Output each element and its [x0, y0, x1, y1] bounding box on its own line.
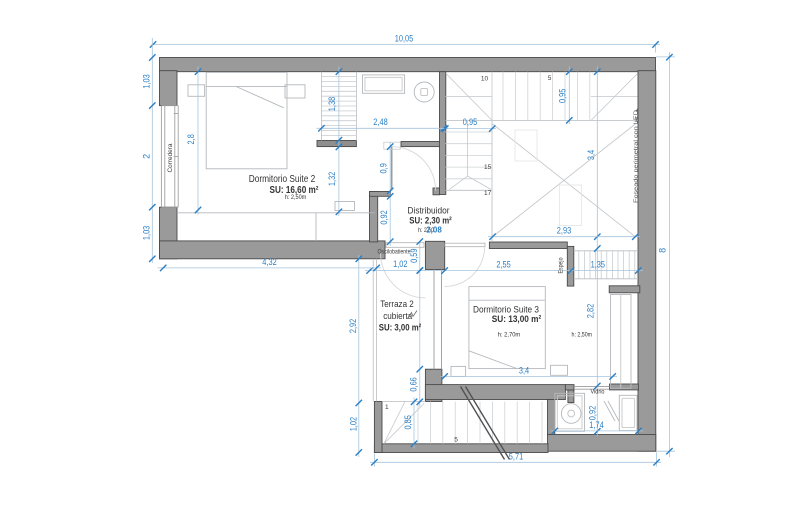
svg-text:10,05: 10,05: [395, 34, 414, 44]
svg-text:2: 2: [142, 154, 152, 159]
svg-text:2,48: 2,48: [373, 117, 387, 127]
svg-text:Oscilobatiente: Oscilobatiente: [378, 249, 412, 255]
svg-text:0,85: 0,85: [403, 415, 413, 429]
svg-text:1,03: 1,03: [142, 74, 152, 88]
svg-text:2,55: 2,55: [496, 260, 510, 270]
svg-text:Espejo: Espejo: [558, 257, 564, 274]
svg-text:Terraza 2: Terraza 2: [380, 299, 414, 310]
svg-text:1,32: 1,32: [327, 172, 337, 186]
svg-text:2,92: 2,92: [348, 319, 358, 333]
svg-text:Distribuidor: Distribuidor: [408, 206, 450, 216]
svg-text:h: 2,70m: h: 2,70m: [498, 332, 521, 339]
svg-text:5,71: 5,71: [509, 451, 523, 461]
svg-text:Vidrio: Vidrio: [591, 390, 606, 396]
svg-text:1,35: 1,35: [591, 259, 605, 269]
svg-text:1,02: 1,02: [393, 259, 407, 269]
svg-text:Foseado perimetral con LED: Foseado perimetral con LED: [633, 110, 639, 203]
svg-text:SU: 13,00 m²: SU: 13,00 m²: [492, 314, 542, 325]
svg-text:5: 5: [454, 437, 458, 444]
svg-text:1,03: 1,03: [142, 226, 152, 240]
svg-text:8: 8: [658, 248, 668, 253]
svg-text:10: 10: [481, 76, 489, 83]
svg-text:1,38: 1,38: [327, 97, 337, 111]
svg-text:1,02: 1,02: [348, 417, 358, 431]
svg-text:3,4: 3,4: [586, 150, 596, 160]
svg-text:0,66: 0,66: [409, 377, 419, 391]
svg-text:1: 1: [385, 404, 389, 411]
svg-text:4,32: 4,32: [262, 257, 276, 267]
svg-text:h: 2,50m: h: 2,50m: [572, 332, 593, 339]
svg-text:1,74: 1,74: [589, 420, 603, 430]
svg-text:SU: 3,00 m²: SU: 3,00 m²: [379, 323, 422, 334]
svg-text:h: 2,50m: h: 2,50m: [285, 194, 307, 201]
svg-text:3,4: 3,4: [519, 365, 529, 375]
svg-text:0,92: 0,92: [379, 210, 389, 224]
svg-text:Corredera: Corredera: [168, 143, 174, 173]
svg-text:5: 5: [548, 75, 552, 82]
svg-text:0,95: 0,95: [558, 89, 568, 103]
svg-text:2,8: 2,8: [186, 134, 196, 144]
svg-text:17: 17: [484, 190, 492, 197]
svg-text:15: 15: [484, 164, 492, 171]
svg-text:2,93: 2,93: [557, 226, 571, 236]
svg-text:1: 1: [634, 117, 638, 124]
svg-text:2,82: 2,82: [586, 304, 596, 318]
svg-text:0,95: 0,95: [463, 117, 477, 127]
svg-text:0,9: 0,9: [379, 163, 389, 173]
svg-text:Dormitorio Suite 2: Dormitorio Suite 2: [249, 174, 316, 185]
svg-text:0,92: 0,92: [588, 406, 598, 420]
svg-text:2,08: 2,08: [426, 226, 442, 235]
